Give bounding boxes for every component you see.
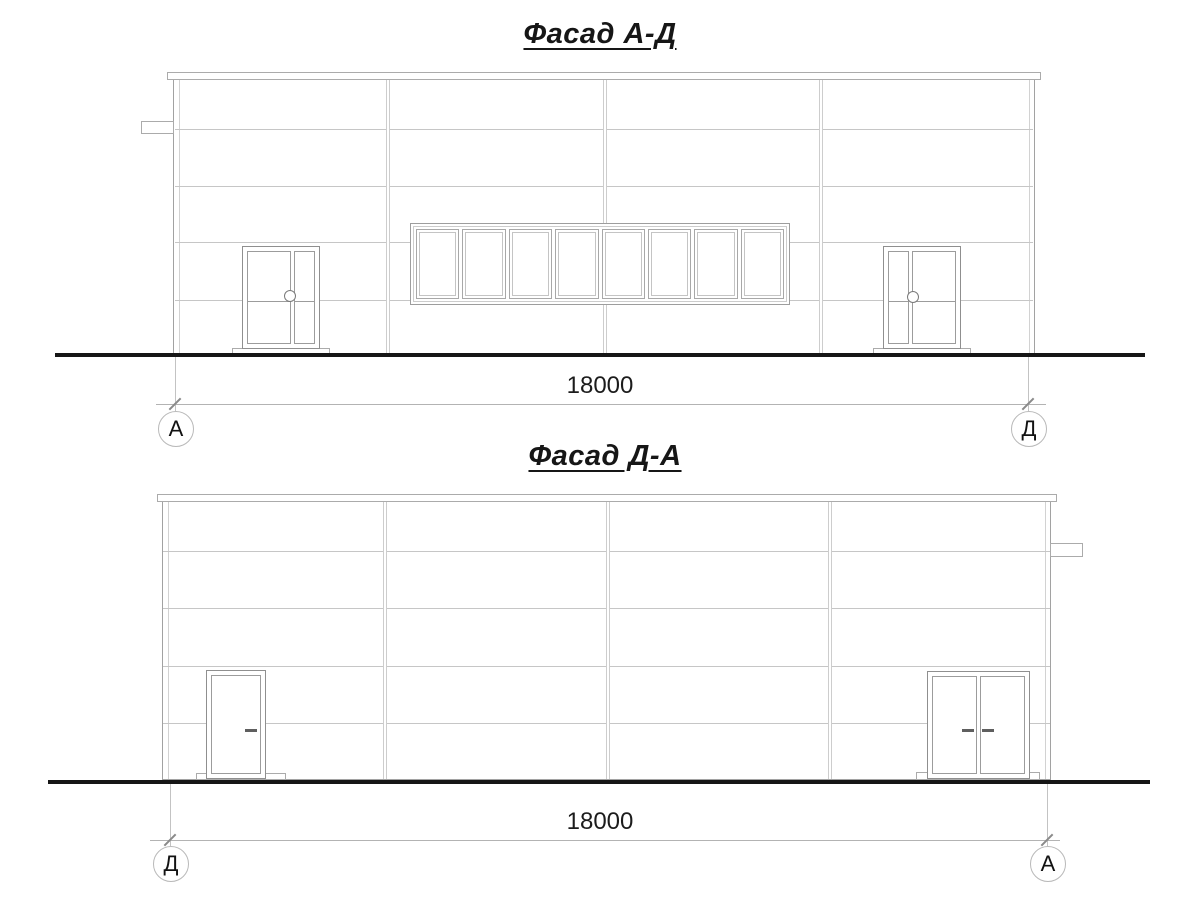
facade-da-wall-inner-edge-left	[168, 502, 169, 779]
door-handle-icon	[962, 729, 974, 732]
window-glass	[605, 232, 642, 296]
window-pane	[509, 229, 552, 299]
door-handle-icon	[245, 729, 257, 732]
axis-marker-left: А	[158, 411, 194, 447]
panel-joint	[383, 502, 387, 779]
door-leaf	[932, 676, 977, 774]
window-pane	[416, 229, 459, 299]
door-right	[883, 246, 961, 349]
window-glass	[419, 232, 456, 296]
facade-da-parapet	[157, 494, 1057, 502]
panel-joint	[603, 80, 607, 353]
drawing-sheet: Фасад А-Д	[0, 0, 1200, 900]
ground-line	[55, 353, 1145, 357]
door-mid-rail	[294, 301, 315, 302]
door-leaf	[980, 676, 1025, 774]
window-glass	[697, 232, 734, 296]
panel-joint	[828, 502, 832, 779]
door-left	[242, 246, 320, 349]
axis-marker-right: Д	[1011, 411, 1047, 447]
panel-joint	[606, 502, 610, 779]
window-glass	[651, 232, 688, 296]
door-mid-rail	[247, 301, 291, 302]
door-handle-icon	[284, 290, 296, 302]
window-pane	[462, 229, 505, 299]
axis-label: Д	[1022, 416, 1037, 442]
window-pane	[602, 229, 645, 299]
window-pane	[555, 229, 598, 299]
ground-line	[48, 780, 1150, 784]
panel-joint	[386, 80, 390, 353]
axis-label: А	[169, 416, 184, 442]
door-side-panel	[294, 251, 315, 344]
door-left-single	[206, 670, 266, 779]
door-handle-icon	[907, 291, 919, 303]
door-mid-rail	[912, 301, 956, 302]
facade-ad-title: Фасад А-Д	[400, 18, 800, 51]
door-leaf	[211, 675, 261, 774]
window-band	[410, 223, 790, 305]
window-glass	[512, 232, 549, 296]
facade-ad-wall-inner-edge-right	[1029, 80, 1030, 353]
dimension-value: 18000	[500, 372, 700, 400]
dimension-line	[156, 404, 1046, 405]
door-side-panel	[888, 251, 909, 344]
window-pane-row	[416, 229, 784, 299]
window-pane	[741, 229, 784, 299]
window-glass	[465, 232, 502, 296]
door-right-double	[927, 671, 1030, 779]
panel-joint	[819, 80, 823, 353]
dimension-line	[150, 840, 1060, 841]
axis-label: Д	[164, 851, 179, 877]
facade-da-wall-inner-edge-right	[1045, 502, 1046, 779]
axis-marker-right: А	[1030, 846, 1066, 882]
window-glass	[558, 232, 595, 296]
axis-marker-left: Д	[153, 846, 189, 882]
window-glass	[744, 232, 781, 296]
axis-label: А	[1041, 851, 1056, 877]
door-mid-rail	[888, 301, 909, 302]
facade-da-title: Фасад Д-А	[405, 440, 805, 473]
facade-ad-parapet	[167, 72, 1041, 80]
facade-ad-wall-inner-edge-left	[179, 80, 180, 353]
door-handle-icon	[982, 729, 994, 732]
scupper-right	[1050, 543, 1083, 557]
window-pane	[694, 229, 737, 299]
dimension-value: 18000	[500, 808, 700, 836]
window-pane	[648, 229, 691, 299]
scupper-left	[141, 121, 174, 134]
